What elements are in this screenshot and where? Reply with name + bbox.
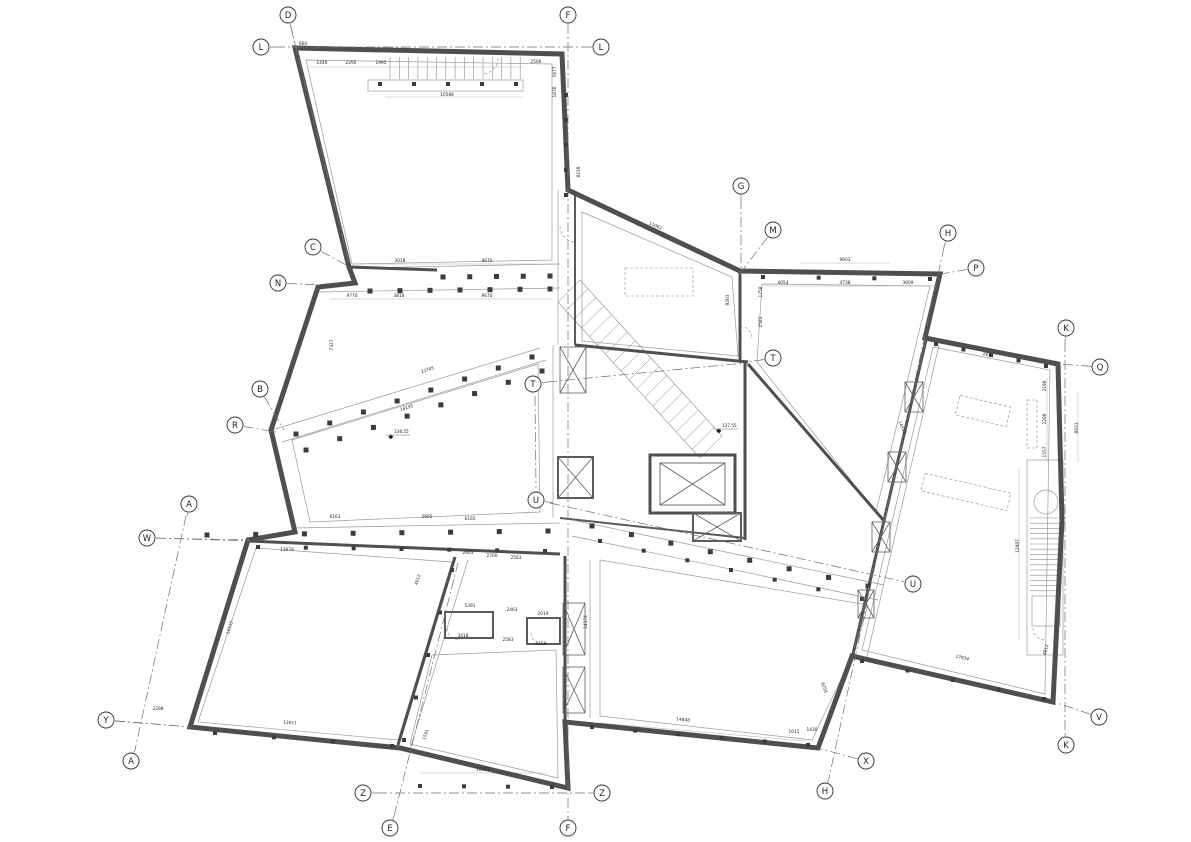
floor-plan-canvas: DFLLCNGMHPKQTTBRAUWUYAZEFZXHKV 600144622… [0, 0, 1191, 842]
grid-marker-T: T [765, 350, 781, 366]
svg-text:4812: 4812 [1042, 643, 1051, 655]
svg-text:16535: 16535 [225, 620, 235, 635]
svg-text:1591: 1591 [422, 728, 431, 741]
svg-text:G: G [738, 182, 745, 192]
svg-text:1870: 1870 [552, 86, 558, 97]
svg-text:9670: 9670 [482, 258, 493, 264]
svg-text:14848: 14848 [676, 716, 690, 723]
svg-text:2150: 2150 [536, 641, 547, 647]
svg-text:9770: 9770 [347, 293, 358, 299]
grid-marker-Y: Y [98, 712, 114, 728]
svg-text:9670: 9670 [482, 293, 493, 299]
svg-text:U: U [533, 496, 539, 506]
svg-text:4012: 4012 [414, 573, 423, 586]
svg-text:2700: 2700 [487, 553, 498, 559]
grid-marker-R: R [227, 417, 243, 433]
grid-marker-U: U [528, 492, 544, 508]
grid-marker-N: N [270, 275, 286, 291]
svg-text:E: E [387, 824, 392, 834]
svg-text:F: F [566, 11, 571, 21]
floor-plan-page: DFLLCNGMHPKQTTBRAUWUYAZEFZXHKV 600144622… [0, 0, 1191, 842]
svg-text:2563: 2563 [511, 555, 522, 561]
svg-text:6163: 6163 [330, 514, 341, 520]
svg-text:2019: 2019 [538, 611, 549, 617]
svg-text:2583: 2583 [503, 637, 514, 643]
grid-marker-K: K [1058, 737, 1074, 753]
stair-central-hatch [558, 280, 722, 458]
svg-text:Z: Z [360, 789, 366, 799]
grid-marker-A: A [123, 753, 139, 769]
grid-marker-U: U [905, 576, 921, 592]
svg-text:X: X [863, 757, 869, 767]
svg-text:17934: 17934 [955, 654, 970, 663]
grid-marker-C: C [305, 239, 321, 255]
dimension-lines [210, 67, 1078, 773]
svg-text:12611: 12611 [283, 720, 297, 727]
grid-marker-B: B [252, 381, 268, 397]
svg-text:W: W [143, 534, 152, 544]
grid-marker-H: H [817, 783, 833, 799]
grid-markers: DFLLCNGMHPKQTTBRAUWUYAZEFZXHKV [98, 7, 1108, 836]
svg-text:1015: 1015 [789, 729, 800, 735]
svg-text:L: L [599, 43, 604, 53]
svg-text:P: P [973, 264, 978, 274]
walls-interior [248, 195, 926, 745]
svg-text:B: B [257, 385, 263, 395]
grid-marker-F: F [560, 7, 576, 23]
svg-text:2190: 2190 [1042, 380, 1048, 391]
level-marker: 138.55 [386, 429, 410, 439]
svg-text:2663: 2663 [463, 550, 474, 556]
grid-marker-K: K [1058, 320, 1074, 336]
grid-marker-L: L [593, 39, 609, 55]
svg-text:2583: 2583 [758, 316, 764, 327]
svg-text:138.55: 138.55 [394, 429, 409, 434]
svg-text:T: T [529, 380, 536, 390]
svg-text:11745: 11745 [420, 365, 435, 375]
svg-text:2463: 2463 [507, 607, 518, 613]
grid-marker-G: G [733, 178, 749, 194]
grid-marker-Z: Z [355, 785, 371, 801]
grid-marker-Q: Q [1092, 359, 1108, 375]
svg-text:12987: 12987 [1015, 539, 1021, 553]
svg-text:3018: 3018 [395, 258, 406, 264]
svg-text:8239: 8239 [576, 166, 582, 177]
svg-text:L: L [259, 43, 264, 53]
grid-marker-F: F [560, 820, 576, 836]
svg-text:M: M [769, 226, 776, 236]
grid-marker-M: M [765, 222, 781, 238]
grid-marker-T: T [525, 376, 541, 392]
svg-text:F: F [566, 824, 571, 834]
svg-text:D: D [285, 11, 292, 21]
svg-text:Y: Y [102, 716, 109, 726]
grid-marker-V: V [1091, 709, 1107, 725]
svg-text:A: A [128, 757, 134, 767]
svg-text:1758: 1758 [758, 286, 764, 297]
svg-text:10586: 10586 [440, 92, 454, 98]
svg-text:N: N [275, 279, 281, 289]
svg-text:H: H [945, 229, 951, 239]
grid-marker-A: A [181, 496, 197, 512]
svg-text:U: U [910, 580, 916, 590]
svg-text:8933: 8933 [1074, 422, 1080, 433]
svg-text:3418: 3418 [458, 633, 469, 639]
svg-text:14374: 14374 [583, 615, 589, 629]
svg-text:2665: 2665 [422, 514, 433, 520]
stair-top [368, 57, 523, 91]
svg-text:2290: 2290 [346, 60, 357, 66]
svg-text:Q: Q [1097, 363, 1104, 373]
grid-marker-E: E [382, 820, 398, 836]
svg-text:1677: 1677 [552, 66, 558, 77]
svg-text:3609: 3609 [903, 280, 914, 286]
svg-text:8259: 8259 [819, 681, 828, 694]
svg-text:T: T [769, 354, 776, 364]
grid-marker-L: L [253, 39, 269, 55]
svg-text:6165: 6165 [465, 516, 476, 522]
svg-text:2286: 2286 [1042, 413, 1048, 424]
grid-marker-H: H [940, 225, 956, 241]
svg-text:1557: 1557 [1042, 446, 1048, 457]
level-marker: 137.55 [714, 423, 738, 433]
svg-text:1430: 1430 [807, 727, 818, 733]
svg-text:2298: 2298 [153, 706, 164, 712]
grid-marker-P: P [968, 260, 984, 276]
svg-text:1446: 1446 [317, 60, 328, 66]
svg-text:9603: 9603 [840, 257, 851, 263]
svg-text:C: C [310, 243, 316, 253]
svg-text:K: K [1063, 741, 1069, 751]
grid-marker-D: D [280, 7, 296, 23]
grid-marker-Z: Z [594, 785, 610, 801]
furniture [625, 268, 1037, 511]
svg-text:9203: 9203 [725, 294, 731, 305]
svg-text:K: K [1063, 324, 1069, 334]
dimension-labels: 6001446229019951058625661677187082393018… [153, 41, 1080, 773]
svg-text:2566: 2566 [531, 59, 542, 65]
svg-text:10477: 10477 [476, 767, 490, 773]
svg-text:3818: 3818 [394, 293, 405, 299]
svg-text:H: H [822, 787, 828, 797]
level-markers: 138.55137.55 [386, 423, 738, 439]
svg-text:A: A [186, 500, 192, 510]
svg-text:5391: 5391 [465, 603, 476, 609]
svg-text:R: R [232, 421, 238, 431]
grid-marker-W: W [139, 530, 155, 546]
grid-marker-X: X [858, 753, 874, 769]
svg-text:4738: 4738 [840, 280, 851, 286]
svg-text:4054: 4054 [778, 280, 789, 286]
svg-text:600: 600 [299, 41, 307, 47]
svg-text:1995: 1995 [376, 60, 387, 66]
svg-text:7327: 7327 [329, 339, 335, 350]
outer-wall [190, 48, 1062, 788]
svg-text:13078: 13078 [280, 547, 294, 553]
svg-text:137.55: 137.55 [722, 423, 737, 428]
svg-text:V: V [1096, 713, 1102, 723]
svg-text:Z: Z [599, 789, 605, 799]
